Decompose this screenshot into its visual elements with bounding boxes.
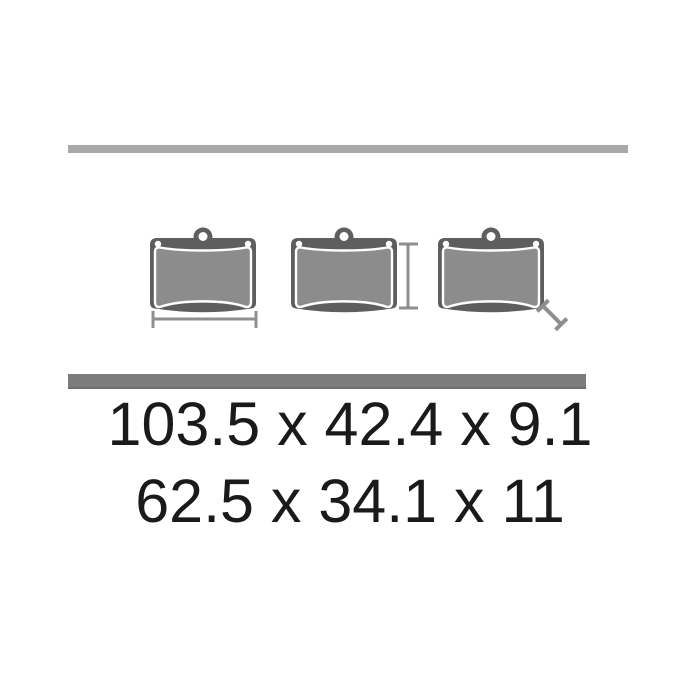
height-dimension-line	[399, 244, 418, 308]
brake-pad-1	[150, 228, 256, 313]
brake-pad-2	[291, 228, 397, 313]
width-dimension-line	[153, 311, 256, 328]
thickness-dimension-line	[537, 300, 567, 330]
product-image: 103.5 x 42.4 x 9.1 62.5 x 34.1 x 11	[0, 0, 700, 700]
dimensions-line-2: 62.5 x 34.1 x 11	[0, 470, 700, 532]
brake-pad-3	[438, 228, 544, 313]
brake-pad-diagram	[0, 0, 700, 700]
dimensions-line-1: 103.5 x 42.4 x 9.1	[0, 393, 700, 455]
bottom-divider-bar	[68, 374, 586, 389]
